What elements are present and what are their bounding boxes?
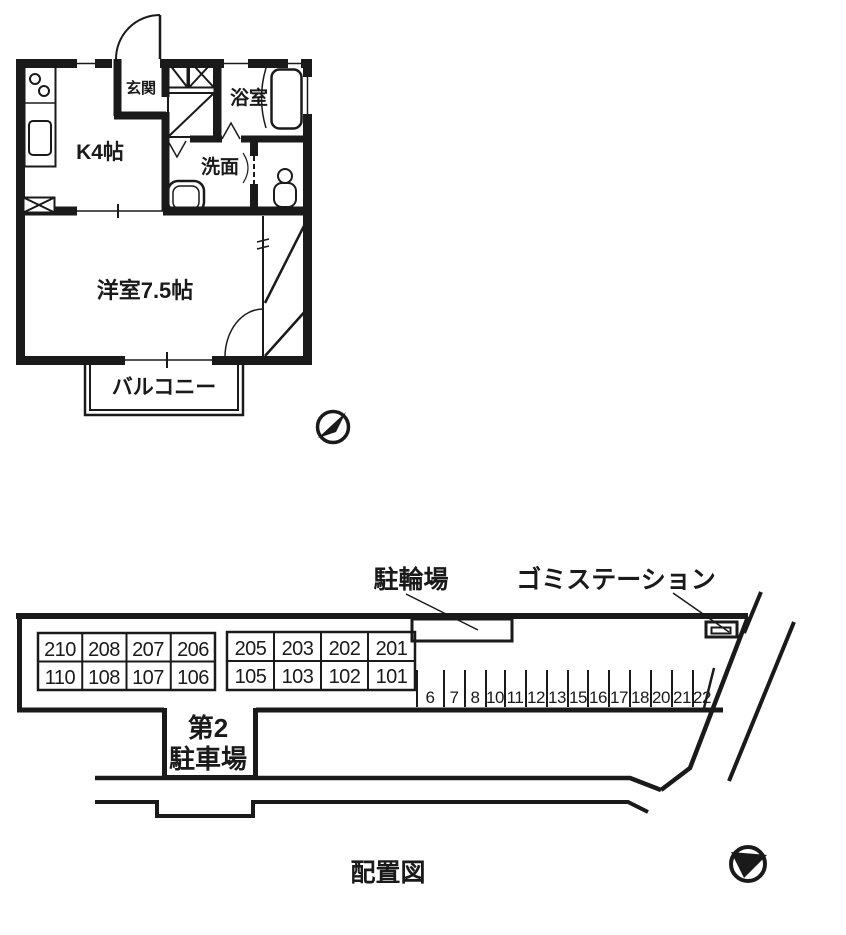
parking-space-label: 102	[329, 666, 361, 688]
hall-closet	[168, 93, 214, 137]
parking2-label-line1: 第2	[188, 713, 228, 743]
stall-number: 10	[486, 688, 504, 707]
stall-number: 21	[673, 688, 691, 707]
stall-number: 13	[548, 688, 566, 707]
garbage-label: ゴミステーション	[516, 565, 716, 594]
stall-number: 15	[569, 688, 587, 707]
parking-space-label: 103	[282, 666, 314, 688]
stall-number: 17	[610, 688, 628, 707]
bicycle-label: 駐輪場	[373, 565, 448, 594]
parking-space-label: 201	[376, 638, 408, 660]
room-closet	[225, 216, 308, 357]
site-plan: 210 208 207 206 110 108 107 106 205 203 …	[16, 565, 794, 887]
floor-plan: 玄関 K4帖 浴室 洗面 洋室7.5帖 バルコニー	[16, 15, 349, 443]
washer-space	[24, 198, 55, 213]
north-arrow-icon	[731, 847, 767, 881]
road-diagonal-short	[744, 592, 761, 633]
stall-number: 18	[631, 688, 649, 707]
kitchen-sink	[29, 121, 51, 155]
entrance-door	[116, 15, 160, 59]
stall-number: 16	[589, 688, 607, 707]
north-arrow-icon	[318, 412, 349, 443]
entrance-label: 玄関	[126, 79, 156, 97]
stall-number: 11	[507, 688, 524, 707]
kitchen-counter	[25, 65, 56, 167]
stove-burner	[30, 74, 40, 84]
washroom-label: 洗面	[201, 155, 239, 178]
parking-space-label: 106	[177, 667, 209, 689]
floorplan-page: 玄関 K4帖 浴室 洗面 洋室7.5帖 バルコニー	[0, 0, 846, 935]
garbage-station-box	[706, 622, 737, 637]
caption-label: 配置図	[350, 859, 425, 887]
garbage-leader-line	[673, 593, 729, 632]
parking-space-label: 208	[88, 639, 120, 661]
stall-number: 22	[693, 688, 711, 707]
stall-number: 6	[426, 688, 435, 707]
parking-space-label: 206	[177, 639, 209, 661]
road-lower-edge	[95, 802, 648, 816]
parking-space-label: 110	[45, 667, 76, 689]
kitchen-label: K4帖	[76, 141, 124, 164]
toilet	[274, 169, 296, 207]
stall-number: 12	[527, 688, 545, 707]
stall-number: 20	[652, 688, 670, 707]
parking-space-label: 108	[88, 667, 120, 689]
parking2-label-line2: 駐車場	[169, 744, 247, 774]
room-label: 洋室7.5帖	[97, 278, 194, 303]
stove-burner	[39, 86, 49, 96]
bath-label: 浴室	[230, 86, 268, 109]
balcony-label: バルコニー	[112, 376, 217, 399]
bath-door	[222, 123, 240, 139]
parking-space-label: 205	[235, 638, 267, 660]
parking-space-label: 107	[132, 667, 164, 689]
parking-space-label: 210	[44, 639, 76, 661]
parking-space-label: 101	[376, 666, 408, 688]
parking-space-label: 203	[282, 638, 314, 660]
stall-number: 7	[450, 688, 459, 707]
parking-space-label: 202	[329, 638, 361, 660]
washroom-door	[168, 141, 186, 157]
parking-space-label: 105	[235, 666, 267, 688]
washroom-arc	[243, 153, 248, 183]
parking-space-label: 207	[132, 639, 164, 661]
room-door-arc	[225, 309, 263, 357]
stall-number: 8	[471, 688, 480, 707]
